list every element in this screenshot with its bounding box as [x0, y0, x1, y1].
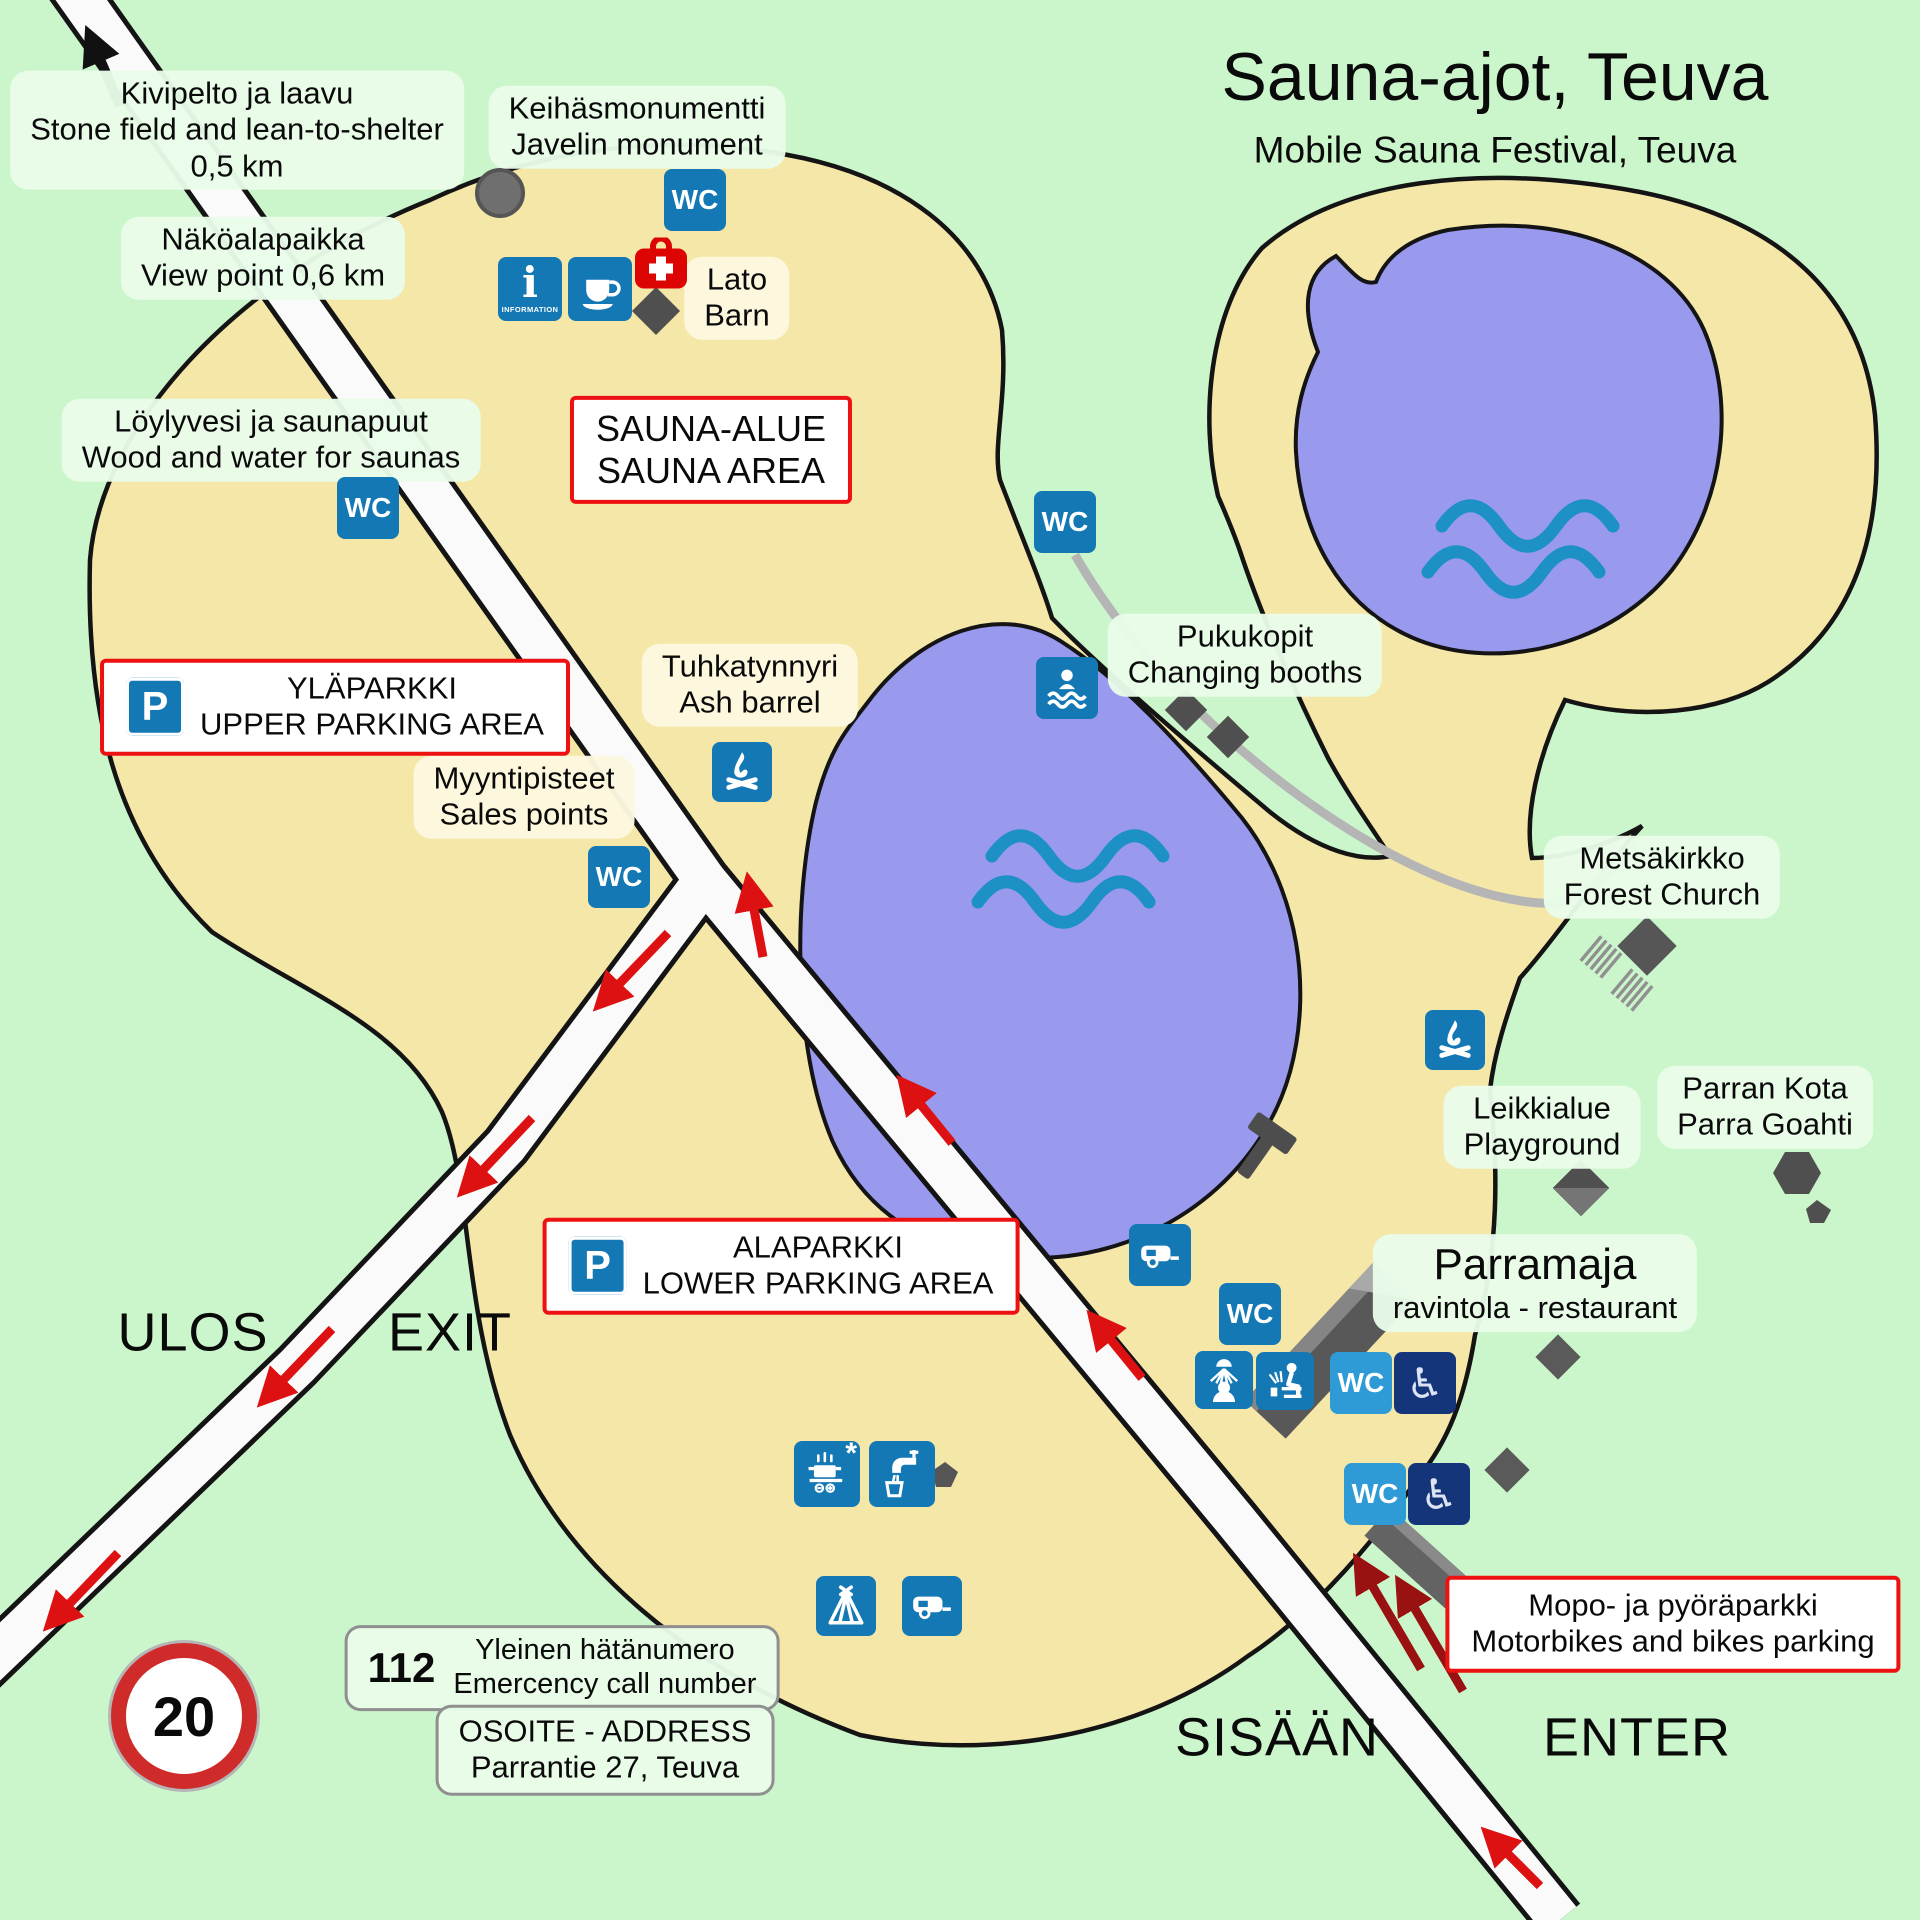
wc-icon: WC [1330, 1352, 1392, 1414]
caravan-icon [902, 1576, 962, 1636]
map-title: Sauna-ajot, Teuva [1222, 38, 1769, 118]
exit-label-fi: ULOS [117, 1301, 268, 1364]
caravan-icon [1129, 1224, 1191, 1286]
wc-icon: WC [337, 477, 399, 539]
enter-label-fi: SISÄÄN [1175, 1706, 1379, 1769]
wc-icon: WC [1219, 1283, 1281, 1345]
javelin-monument-marker [477, 170, 523, 216]
label-view-point: Näköalapaikka View point 0,6 km [121, 217, 405, 300]
lower-parking-sign: P ALAPARKKI LOWER PARKING AREA [543, 1218, 1020, 1315]
cooking-note-asterisk: * [845, 1437, 857, 1471]
swimming-icon [1036, 657, 1098, 719]
label-javelin-monument: Keihäsmonumentti Javelin monument [489, 86, 786, 169]
label-changing-booths: Pukukopit Changing booths [1108, 614, 1382, 697]
wheelchair-icon: ♿ [1394, 1352, 1456, 1414]
emergency-number: 112 [368, 1643, 436, 1692]
wc-icon: WC [664, 169, 726, 231]
enter-label-en: ENTER [1543, 1706, 1731, 1769]
map-subtitle: Mobile Sauna Festival, Teuva [1254, 128, 1737, 171]
accessible-wc-icons: WC ♿ [1344, 1463, 1470, 1525]
label-parra-goahti: Parran Kota Parra Goahti [1657, 1066, 1873, 1149]
sauna-icon [1256, 1352, 1314, 1410]
first-aid-icon [632, 238, 690, 299]
information-icon: i INFORMATION [498, 257, 562, 321]
campfire-icon [1425, 1010, 1485, 1070]
label-barn: Lato Barn [684, 257, 789, 340]
kota-markers [1773, 1152, 1831, 1223]
sauna-area-sign: SAUNA-ALUE SAUNA AREA [570, 396, 852, 504]
wc-icon: WC [1344, 1463, 1406, 1525]
label-sales-points: Myyntipisteet Sales points [414, 756, 635, 839]
parking-icon: P [126, 678, 184, 736]
festival-map: Sauna-ajot, Teuva Mobile Sauna Festival,… [0, 0, 1920, 1920]
upper-parking-sign: P YLÄPARKKI UPPER PARKING AREA [100, 659, 570, 756]
moped-parking-sign: Mopo- ja pyöräparkki Motorbikes and bike… [1445, 1576, 1900, 1673]
shower-icon [1195, 1351, 1253, 1409]
label-restaurant: Parramaja ravintola - restaurant [1373, 1234, 1697, 1332]
cooking-icon: * [794, 1441, 860, 1507]
campfire-icon [712, 742, 772, 802]
exit-label-en: EXIT [388, 1301, 512, 1364]
label-playground: Leikkialue Playground [1444, 1086, 1641, 1169]
address-box: OSOITE - ADDRESS Parrantie 27, Teuva [436, 1705, 775, 1796]
label-ash-barrel: Tuhkatynnyri Ash barrel [642, 644, 858, 727]
cafe-icon [568, 257, 632, 321]
wc-icon: WC [1034, 491, 1096, 553]
parking-icon: P [569, 1237, 627, 1295]
label-forest-church: Metsäkirkko Forest Church [1544, 836, 1780, 919]
label-sauna-wood-water: Löylyvesi ja saunapuut Wood and water fo… [62, 399, 481, 482]
drinking-water-icon [869, 1441, 935, 1507]
label-stone-field: Kivipelto ja laavu Stone field and lean-… [10, 71, 464, 190]
wc-icon: WC [588, 846, 650, 908]
wheelchair-icon: ♿ [1408, 1463, 1470, 1525]
emergency-number-box: 112 Yleinen hätänumero Emercency call nu… [345, 1625, 780, 1711]
accessible-wc-icons: WC ♿ [1330, 1352, 1456, 1414]
tent-icon [816, 1576, 876, 1636]
speed-limit-sign: 20 [111, 1643, 257, 1789]
forest-church-marker [1581, 916, 1677, 1010]
parramaja-hut-markers [1484, 1334, 1580, 1492]
